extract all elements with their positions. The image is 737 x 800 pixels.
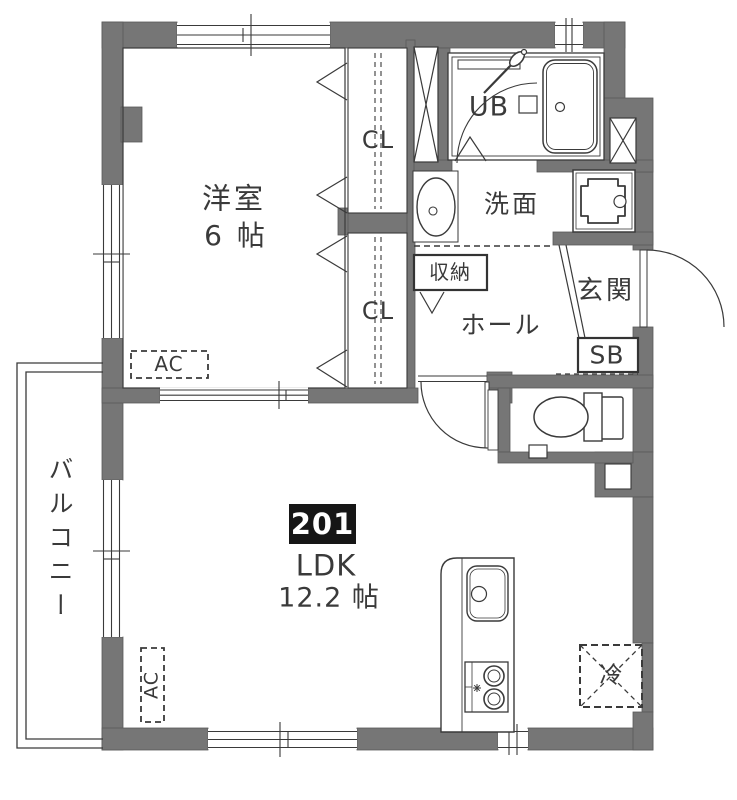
sliding-door-western-ldk <box>160 381 308 409</box>
bathtub <box>543 60 597 153</box>
pipe-space-box <box>605 464 631 489</box>
toilet-bowl <box>534 397 588 437</box>
unit-number-badge: 201 <box>289 504 356 544</box>
floor-plan: 洋室 6 帖 CL CL UB 洗面 収納 ホール 玄関 SB 201 LDK … <box>0 0 737 800</box>
toilet-sliding-door <box>488 390 498 450</box>
storage-door-swing-icon <box>420 292 444 313</box>
washing-machine-pan <box>573 170 635 232</box>
western-room-size: 6 帖 <box>204 222 268 250</box>
entrance-door-arc <box>647 250 724 327</box>
closet-lower-label: CL <box>362 299 394 323</box>
washroom-label: 洗面 <box>484 192 540 217</box>
toilet-tank <box>601 397 623 439</box>
unit-bath-label: UB <box>469 94 509 121</box>
ac-western-label: AC <box>154 354 183 374</box>
hall-ldk-door <box>418 376 489 448</box>
closet-upper-label: CL <box>362 128 394 152</box>
refrigerator-label: 冷 <box>600 665 623 688</box>
ub-mixer <box>519 96 537 113</box>
balcony-label: バルコニー <box>41 456 77 656</box>
floor-plan-drawing <box>0 0 737 800</box>
kitchen-faucet <box>472 587 487 602</box>
window-ub-top <box>555 18 583 52</box>
western-room-outline <box>123 48 345 388</box>
entrance-door-leaf <box>640 250 647 327</box>
window-western-left <box>93 185 130 338</box>
washbasin <box>417 178 455 236</box>
window-western-top <box>177 14 330 56</box>
ldk-size: 12.2 帖 <box>278 585 380 612</box>
ldk-label: LDK <box>296 552 357 581</box>
ac-ldk-label: AC <box>143 671 162 699</box>
western-room-label: 洋室 <box>202 185 266 214</box>
toilet-paper-holder <box>529 445 547 458</box>
shoe-box-label: SB <box>589 343 624 368</box>
storage-label: 収納 <box>429 262 471 282</box>
hall-door-arc <box>421 382 487 448</box>
kitchen <box>441 558 514 732</box>
hall-label: ホール <box>460 313 541 338</box>
entrance-label: 玄関 <box>577 278 635 304</box>
stove <box>465 662 508 712</box>
window-ldk-balcony <box>93 480 130 637</box>
spark-icon <box>473 684 481 692</box>
window-ldk-bottom <box>208 722 357 757</box>
